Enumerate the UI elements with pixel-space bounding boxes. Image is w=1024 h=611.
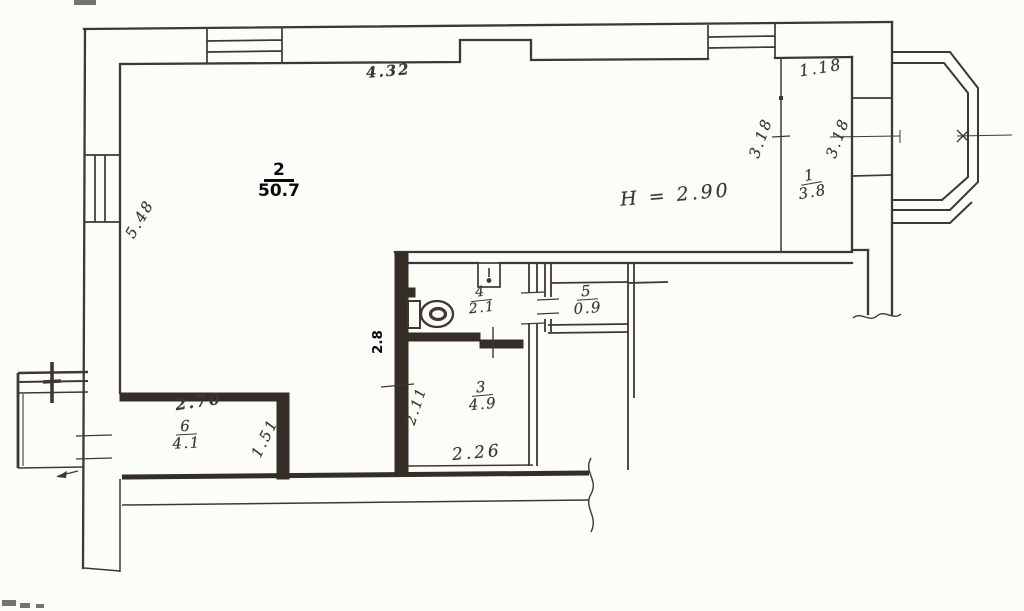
scan-smudges [2, 0, 96, 608]
bay-center-axis [830, 130, 1012, 143]
room5-area: 0.9 [573, 299, 602, 317]
room2-number: 2 [264, 161, 294, 182]
room3-label: 3 4.9 [467, 378, 498, 414]
left-attachment [18, 362, 112, 478]
break-lines [589, 314, 901, 532]
room1-partition [772, 58, 790, 251]
arrow-head [56, 471, 67, 478]
room6-label: 6 4.1 [171, 417, 201, 452]
window-top-left-icon [207, 27, 282, 63]
room6-area: 4.1 [172, 434, 201, 452]
dim-top-wall: 4.32 [365, 60, 411, 82]
corridor-top-wall [122, 473, 589, 477]
corridor-break-line [589, 458, 594, 532]
paper-holder-icon [404, 288, 415, 297]
room5-label: 5 0.9 [572, 282, 603, 317]
tick-marks [76, 435, 112, 459]
toilet-icon [421, 301, 453, 327]
room1-label: 1 3.8 [794, 165, 828, 203]
room4-label: 4 2.1 [466, 284, 496, 318]
door-tick-marks [521, 292, 545, 324]
room3-area: 4.9 [468, 395, 498, 414]
window-top-right-icon [708, 24, 775, 59]
room4-right-wall [521, 263, 545, 466]
corridor-bottom-line [122, 500, 589, 505]
room5-walls [537, 263, 668, 470]
survey-cross-icon [43, 362, 61, 403]
room2-label: 2 50.7 [258, 161, 300, 201]
room3-bottom-wall [408, 465, 533, 466]
thin-lines [84, 327, 589, 572]
window-left-icon [84, 155, 120, 222]
dim-room3-width: 2.8 [370, 327, 386, 357]
room4-area: 2.1 [468, 300, 496, 318]
wall-break-line [853, 314, 901, 319]
toilet-tank-icon [408, 301, 420, 328]
floor-plan: 2 50.7 1 3.8 4 2.1 5 0.9 3 4.9 6 4.1 H =… [0, 0, 1024, 611]
door-tick-marks [537, 299, 559, 314]
floor-plan-svg [0, 0, 1024, 611]
room2-area: 50.7 [258, 182, 300, 200]
